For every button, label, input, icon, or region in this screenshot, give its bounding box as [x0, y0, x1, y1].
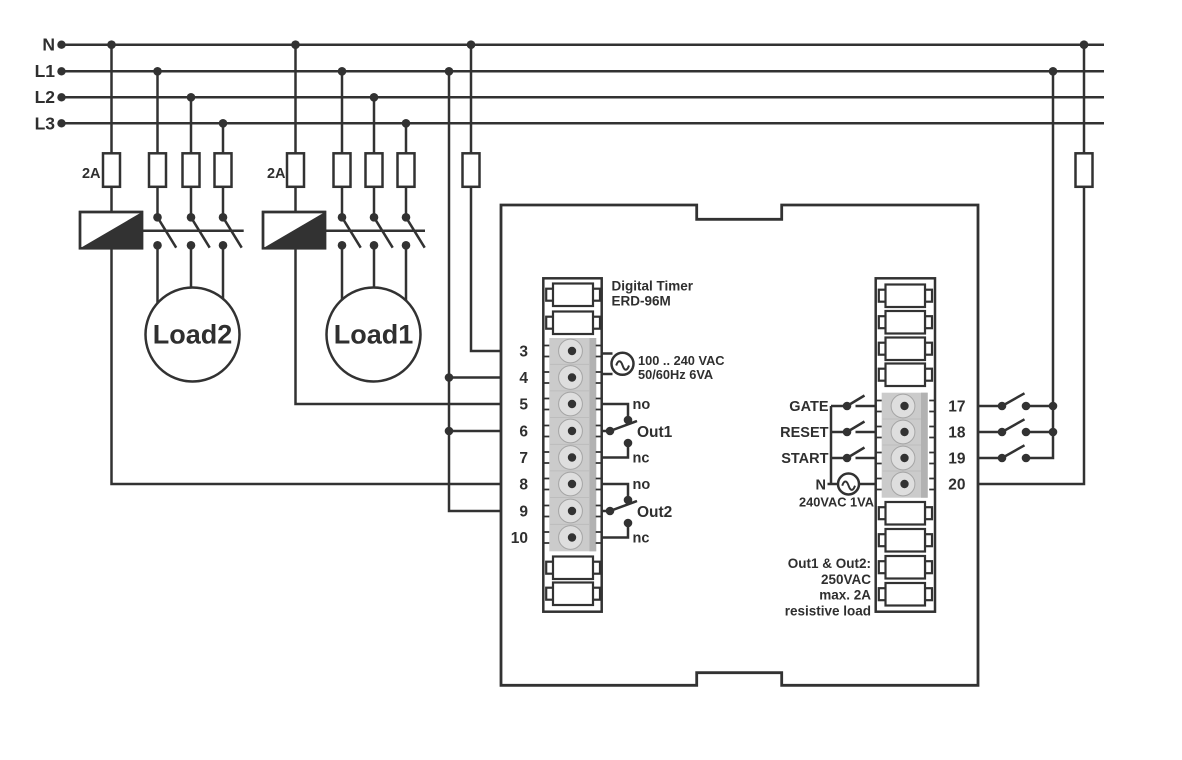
- load2-wires: [112, 45, 502, 484]
- switch-dot: [843, 428, 852, 437]
- terminal-number: 17: [948, 398, 965, 415]
- switch-dot: [1022, 428, 1031, 437]
- terminal-pin: [900, 402, 908, 410]
- fuse: [149, 153, 166, 187]
- rail-start-dot: [57, 67, 65, 75]
- fuse: [398, 153, 415, 187]
- terminal-number: 20: [948, 476, 965, 493]
- contact-dot: [187, 213, 196, 222]
- load2-branch: Load2 2A: [80, 40, 501, 484]
- contact-dot: [219, 213, 228, 222]
- out1-no-label: no: [633, 397, 651, 413]
- note-line: 250VAC: [821, 572, 871, 587]
- terminal-number: 9: [519, 503, 528, 520]
- junction-dot: [445, 427, 454, 436]
- junction-dot: [187, 93, 196, 102]
- supply-rating-line2: 50/60Hz 6VA: [638, 367, 713, 382]
- load1-label: Load1: [334, 320, 414, 350]
- terminal-slot: [879, 311, 932, 334]
- contactor-coil: [80, 212, 142, 248]
- contact-dot: [370, 241, 379, 250]
- contact-dot: [624, 439, 633, 448]
- contact-dot: [402, 241, 411, 250]
- rail-start-dot: [57, 93, 65, 101]
- left-terminal-numbers: 3 4 5 6 7 8 9 10: [511, 343, 529, 547]
- junction-dot: [1049, 402, 1058, 411]
- terminal-pin: [900, 428, 908, 436]
- contact-dot: [402, 213, 411, 222]
- rail-label-l1: L1: [35, 61, 56, 81]
- output-rating-note: Out1 & Out2: 250VAC max. 2A resistive lo…: [785, 556, 872, 618]
- terminal-slot: [879, 556, 932, 579]
- terminal-slot: [546, 284, 600, 307]
- fuse-rating-label: 2A: [267, 166, 286, 182]
- contact-dot: [606, 507, 615, 516]
- timer-supply-wires: [445, 40, 501, 511]
- contact-dot: [606, 427, 615, 436]
- terminal-slot: [879, 583, 932, 606]
- device-title: Digital Timer: [612, 279, 694, 294]
- wiring-diagram: N L1 L2 L3 Load2 2A: [0, 0, 1182, 760]
- out1-nc-label: nc: [633, 450, 650, 466]
- control-inputs: GATE RESET START N 240VAC 1VA: [780, 396, 876, 510]
- out2-blade: [610, 501, 637, 511]
- device-model: ERD-96M: [612, 294, 671, 309]
- terminal-slot: [879, 364, 932, 387]
- out2-no-label: no: [633, 477, 651, 493]
- terminal-slot: [879, 338, 932, 361]
- fuse: [183, 153, 200, 187]
- wiring-diagram-page: N L1 L2 L3 Load2 2A: [0, 0, 1182, 760]
- rail-lines: [60, 45, 1104, 124]
- contact-dot: [338, 213, 347, 222]
- terminal-number: 3: [519, 343, 528, 360]
- terminal-number: 18: [948, 424, 966, 441]
- terminal-pin: [568, 427, 576, 435]
- left-terminal-strip: 3 4 5 6 7 8 9 10: [511, 278, 602, 611]
- terminal-pin: [568, 453, 576, 461]
- out1-contact: no Out1 nc: [602, 397, 673, 466]
- switch-dot: [1022, 454, 1031, 463]
- contact-dot: [187, 241, 196, 250]
- reset-label: RESET: [780, 425, 828, 441]
- right-terminal-numbers: 17 18 19 20: [948, 398, 966, 493]
- contact-dot: [153, 213, 162, 222]
- fuse: [215, 153, 232, 187]
- switch-dot: [998, 402, 1007, 411]
- load1-contact-blades: [342, 217, 425, 247]
- terminal-pin: [568, 507, 576, 515]
- terminal-pin: [568, 480, 576, 488]
- switch-dot: [998, 428, 1007, 437]
- rail-label-n: N: [42, 35, 55, 55]
- contactor-coil: [263, 212, 325, 248]
- contact-dot: [624, 496, 633, 505]
- rail-label-l3: L3: [35, 114, 56, 134]
- timer-device: Digital Timer ERD-96M: [501, 205, 978, 685]
- fuse: [287, 153, 304, 187]
- junction-dot: [402, 119, 411, 128]
- terminal-slot: [879, 285, 932, 308]
- gate-label: GATE: [789, 399, 829, 415]
- supply-feed-wires: [449, 45, 501, 511]
- terminal-number: 7: [519, 450, 528, 467]
- plug-connector: [882, 393, 928, 498]
- junction-dot: [219, 119, 228, 128]
- fuse: [463, 153, 480, 187]
- contact-dot: [219, 241, 228, 250]
- terminal-number: 6: [519, 423, 528, 440]
- control-supply-label: 240VAC 1VA: [799, 495, 874, 510]
- switch-dot: [1022, 402, 1031, 411]
- terminal-pin: [568, 373, 576, 381]
- terminal-pin: [568, 533, 576, 541]
- junction-dot: [445, 67, 454, 76]
- terminal-number: 5: [519, 396, 528, 413]
- contact-dot: [338, 241, 347, 250]
- out1-blade: [610, 421, 637, 431]
- switch-blades: [1002, 393, 1025, 458]
- terminal-slot: [546, 312, 600, 335]
- out1-label: Out1: [637, 424, 673, 441]
- terminal-slot: [879, 529, 932, 552]
- contact-dot: [370, 213, 379, 222]
- load2-contact-blades: [158, 217, 242, 247]
- terminal-number: 4: [519, 370, 528, 387]
- terminal-slot: [546, 583, 600, 606]
- fuse-rating-label: 2A: [82, 166, 101, 182]
- out2-label: Out2: [637, 504, 672, 521]
- contact-dot: [624, 519, 633, 528]
- junction-dot: [1080, 40, 1089, 49]
- junction-dot: [1049, 67, 1058, 76]
- neutral-label: N: [816, 477, 826, 493]
- switch-dot: [843, 402, 852, 411]
- contact-dot: [153, 241, 162, 250]
- terminal-number: 8: [519, 476, 528, 493]
- terminal-slot: [546, 557, 600, 580]
- out2-contact: no Out2 nc: [602, 477, 673, 547]
- junction-dot: [291, 40, 300, 49]
- rail-start-dot: [57, 119, 65, 127]
- junction-dot: [338, 67, 347, 76]
- terminal-slot: [879, 502, 932, 525]
- plug-connector: [549, 338, 596, 551]
- switch-dot: [998, 454, 1007, 463]
- terminal-number: 19: [948, 450, 966, 467]
- junction-dot: [370, 93, 379, 102]
- junction-dot: [445, 373, 454, 382]
- external-control-switches: [978, 40, 1093, 484]
- terminal-pin: [568, 400, 576, 408]
- junction-dot: [153, 67, 162, 76]
- load1-branch: Load1 2A: [263, 40, 501, 404]
- junction-dot: [107, 40, 116, 49]
- start-label: START: [781, 451, 828, 467]
- rail-label-l2: L2: [35, 87, 56, 107]
- note-line: Out1 & Out2:: [788, 556, 871, 571]
- note-line: resistive load: [785, 603, 871, 618]
- terminal-pin: [900, 480, 908, 488]
- junction-dot: [1049, 428, 1058, 437]
- right-terminal-strip: 17 18 19 20: [876, 278, 966, 611]
- junction-dot: [467, 40, 476, 49]
- note-line: max. 2A: [819, 588, 871, 603]
- contact-dot: [624, 416, 633, 425]
- fuse: [366, 153, 383, 187]
- rail-start-dot: [57, 41, 65, 49]
- supply-symbol: 100 .. 240 VAC 50/60Hz 6VA: [602, 353, 725, 382]
- supply-rating-line1: 100 .. 240 VAC: [638, 353, 725, 368]
- right-feed-wires: [978, 45, 1084, 484]
- fuse: [1076, 153, 1093, 187]
- load2-label: Load2: [153, 320, 233, 350]
- fuse: [103, 153, 120, 187]
- terminal-pin: [900, 454, 908, 462]
- terminal-pin: [568, 347, 576, 355]
- out2-nc-label: nc: [633, 531, 650, 547]
- switch-dot: [843, 454, 852, 463]
- terminal-number: 10: [511, 530, 528, 547]
- fuse: [334, 153, 351, 187]
- power-rails: N L1 L2 L3: [35, 35, 1104, 134]
